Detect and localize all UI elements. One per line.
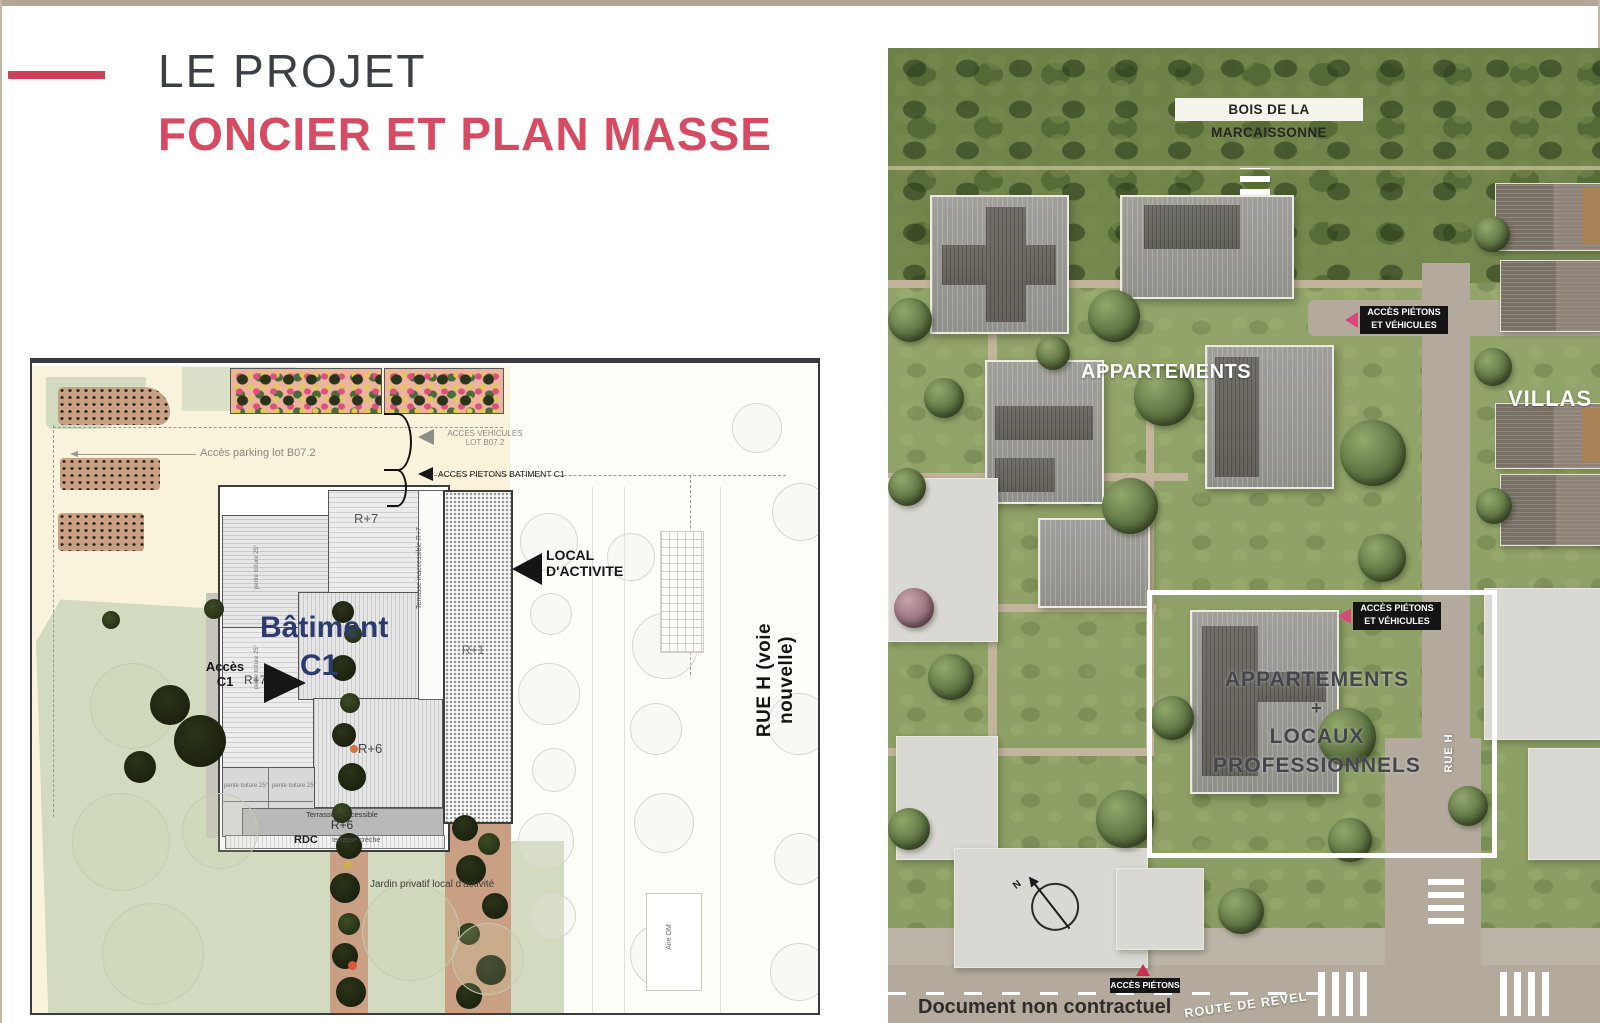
acces-pietons-vehicules-label-1: ACCÈS PIÉTONS ET VÉHICULES: [1360, 306, 1448, 334]
street-tree: [1474, 216, 1510, 252]
shrub: [452, 815, 478, 841]
terrace-band-r6: R+6: [272, 818, 412, 832]
street-tree: [1474, 348, 1512, 386]
page-title-line2: FONCIER ET PLAN MASSE: [158, 107, 772, 161]
flowering-tree: [894, 588, 934, 628]
tree: [928, 654, 974, 700]
acces-parking-arrow-line: [76, 454, 196, 455]
shrub: [482, 893, 508, 919]
pente-label-1: pente toiture 25°: [254, 527, 262, 607]
aire-om-label: Aire OM: [666, 887, 678, 987]
apartment-building: [930, 195, 1069, 334]
plan-faint-line-3: [720, 487, 721, 1013]
building-c1-wing-r7: [328, 490, 420, 594]
site-plan-image: Aire OM Accès parking lot B07.2 ACCES VE…: [30, 358, 820, 1015]
villa-roof: [1500, 474, 1600, 546]
acces-vehicules-line2: LOT B07.2: [466, 438, 505, 447]
shrub: [338, 913, 360, 935]
shrub: [332, 723, 356, 747]
acces-pv-arrow-icon-2: [1338, 608, 1351, 624]
plan-tree-outline: [532, 748, 576, 792]
plan-tree-outline: [518, 813, 574, 869]
plan-path-top-left: [58, 387, 170, 425]
acces-pietons-arrow-up-icon: [1136, 964, 1150, 976]
plan-tree-outline: [634, 793, 694, 853]
plan-tree-outline: [774, 833, 820, 885]
acces-parking-label: Accès parking lot B07.2: [200, 447, 316, 459]
big-dark-tree: [174, 715, 226, 767]
terrace-strip-text: Terrasse inaccessible: [416, 542, 423, 609]
plan-lot-line-vertical: [53, 425, 54, 817]
highlight-line2: +: [1147, 698, 1487, 719]
crosswalk-1: [1318, 972, 1370, 1016]
shrub: [336, 977, 366, 1007]
acces-pv1-line2: ET VÉHICULES: [1371, 320, 1437, 330]
tree-outline: [452, 923, 524, 995]
pente-label-3: pente toiture 25°: [224, 783, 268, 789]
terrasse-creche-label: terrasse crèche: [332, 837, 380, 844]
title-accent-dash: [8, 71, 105, 79]
tree-outline: [362, 883, 460, 981]
acces-pietons-label: ACCÈS PIÉTONS: [1110, 978, 1180, 993]
flower-dot: [350, 745, 358, 753]
plan-path-left-1: [60, 458, 160, 490]
acces-pietons-batiment-label: ACCES PIETONS BATIMENT C1: [438, 470, 565, 479]
roof-label-r7: R+7: [354, 511, 378, 526]
big-dark-tree: [124, 751, 156, 783]
roof-section: [995, 406, 1093, 440]
roof-label-r1: R+1: [462, 643, 484, 657]
villa-roof: [1500, 260, 1600, 332]
shrub: [478, 833, 500, 855]
crosswalk-3: [1428, 876, 1464, 924]
plan-tree-outline: [530, 893, 576, 939]
small-tree: [102, 611, 120, 629]
plan-tree-outline: [518, 663, 580, 725]
document-non-contractuel-label: Document non contractuel: [918, 996, 1171, 1019]
plan-tree-outline: [630, 703, 682, 755]
acces-c1-line1: Accès: [206, 659, 244, 674]
tree: [888, 298, 932, 342]
road-center-line: [888, 992, 1318, 995]
jardin-label: Jardin privatif local d'activité: [370, 879, 494, 890]
shrub: [330, 873, 360, 903]
acces-pietons-vehicules-label-2: ACCÈS PIÉTONS ET VÉHICULES: [1353, 602, 1441, 630]
crosswalk-2: [1500, 972, 1556, 1016]
roof-section: [995, 458, 1055, 492]
terrace-strip-label: Terrasse inaccessible R+7: [416, 513, 426, 623]
acces-c1-arrow-icon: [264, 663, 306, 703]
slab-building: [1116, 868, 1204, 950]
rdc-label: RDC: [294, 834, 318, 846]
pente-label-4: pente toiture 25°: [272, 783, 316, 789]
plan-lot-line-top: [53, 427, 503, 428]
tree: [1340, 420, 1406, 486]
villas-label: VILLAS: [1508, 386, 1592, 412]
roof-label-r6: R+6: [358, 741, 382, 756]
plan-grid-patch: [660, 531, 704, 653]
local-line2: D'ACTIVITE: [546, 563, 623, 579]
villa-deck: [1582, 408, 1600, 462]
shrub: [338, 763, 366, 791]
slide-left-border: [0, 0, 2, 1023]
plan-tree-outline: [732, 403, 782, 453]
acces-pv2-line2: ET VÉHICULES: [1364, 616, 1430, 626]
acces-c1-label: Accès C1: [194, 659, 256, 689]
tree: [888, 808, 930, 850]
tree: [1358, 534, 1406, 582]
slide-top-border: [0, 0, 1600, 6]
tree: [1096, 790, 1154, 848]
local-activite-label: LOCAL D'ACTIVITE: [546, 547, 623, 579]
slab-building: [1528, 748, 1600, 860]
highlight-line3: LOCAUX: [1147, 725, 1487, 749]
acces-vehicules-arrow-icon: [418, 429, 434, 445]
plan-tree-outline: [530, 593, 572, 635]
acces-pv2-line1: ACCÈS PIÉTONS: [1360, 603, 1433, 613]
tree-outline: [182, 793, 258, 869]
shrub: [340, 693, 360, 713]
highlight-caption: APPARTEMENTS + LOCAUX PROFESSIONNELS: [1147, 668, 1487, 778]
page-title-line1: LE PROJET: [158, 44, 427, 98]
acces-vehicules-label: ACCES VEHICULES LOT B07.2: [440, 429, 530, 447]
highlight-line1: APPARTEMENTS: [1147, 668, 1487, 692]
entrance-arc-1: [384, 413, 412, 471]
tree: [1088, 290, 1140, 342]
bois-marcaissonne-label: BOIS DE LA MARCAISSONNE: [1175, 98, 1363, 121]
compass-n: N: [1011, 878, 1023, 891]
rue-h-label: RUE H: [1443, 703, 1457, 803]
flower-dot: [348, 961, 357, 970]
acces-parking-arrowhead-icon: [70, 451, 78, 457]
apartment-building: [1120, 195, 1294, 299]
terrace-strip-r7: R+7: [416, 527, 423, 540]
batiment-c1-label-line1: Bâtiment: [260, 611, 388, 645]
acces-pv-arrow-icon-1: [1345, 312, 1358, 328]
tree: [1218, 888, 1264, 934]
plan-tree-outline: [770, 943, 820, 1001]
acces-vehicules-line1: ACCES VEHICULES: [447, 429, 522, 438]
small-tree: [204, 599, 224, 619]
appartements-label: APPARTEMENTS: [1081, 361, 1251, 384]
slab-building: [1484, 588, 1600, 740]
tree: [924, 378, 964, 418]
tree: [1036, 336, 1070, 370]
plan-flower-bed-2: [384, 368, 504, 414]
aerial-masterplan-image: BOIS DE LA MARCAISSONNE APPARTEMENTS VIL…: [888, 48, 1600, 1023]
tree: [1102, 478, 1158, 534]
local-activite-arrow-icon: [512, 553, 542, 585]
building-r1-block: [443, 490, 513, 824]
plan-path-left-2: [58, 513, 144, 551]
acces-c1-line2: C1: [217, 674, 234, 689]
acces-pv1-line1: ACCÈS PIÉTONS: [1367, 307, 1440, 317]
entrance-arc-2: [387, 469, 407, 507]
rue-h-voie-nouvelle-label: RUE H (voie nouvelle): [754, 580, 776, 780]
villa-deck: [1582, 188, 1600, 244]
street-tree: [1476, 488, 1512, 524]
plan-flower-bed-1: [230, 368, 382, 414]
tree: [888, 468, 926, 506]
local-line1: LOCAL: [546, 547, 594, 563]
flower-dot: [344, 861, 352, 869]
tree-outline: [72, 793, 170, 891]
highlight-line4: PROFESSIONNELS: [1147, 754, 1487, 778]
tree-outline: [102, 903, 204, 1005]
roof-section: [986, 207, 1026, 322]
building-c1-wing-center: [298, 592, 420, 700]
acces-pietons-arrow-icon: [418, 467, 433, 481]
roof-section: [1144, 205, 1240, 249]
